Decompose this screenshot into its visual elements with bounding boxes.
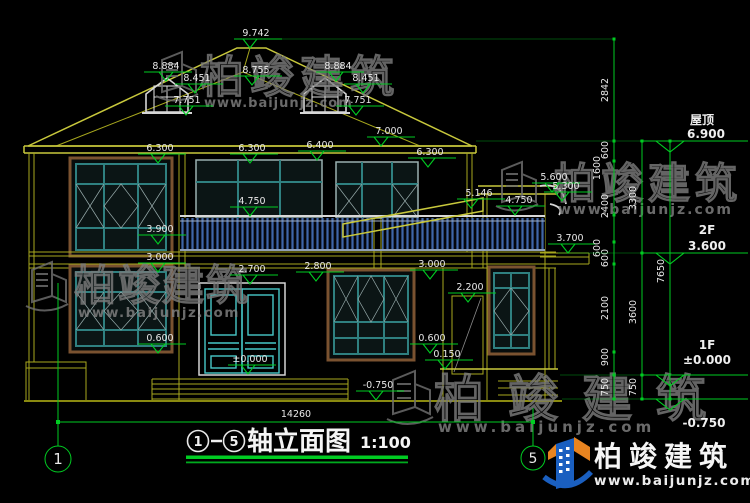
brand-name: 柏竣建筑 (594, 440, 734, 473)
svg-text:4.750: 4.750 (505, 195, 532, 206)
svg-text:0.150: 0.150 (433, 349, 460, 360)
svg-text:0.600: 0.600 (146, 333, 173, 344)
chain1-dim: 750 (600, 378, 611, 396)
chain1-dim: 600 (600, 249, 611, 267)
watermark-url: www.baijunjz.com (558, 202, 733, 218)
title-axis-from: 1 (193, 435, 202, 450)
chain2-dim: 3300 (628, 186, 639, 210)
chain1-dim: 2100 (600, 296, 611, 320)
cad-elevation-drawing: 柏竣建筑 www.baijunjz.com 柏竣建筑 www.baijunjz.… (0, 0, 750, 503)
title-underline (186, 456, 408, 460)
chain1-dim: 900 (600, 348, 611, 366)
svg-text:6.300: 6.300 (238, 143, 265, 154)
total-width-dim: 14260 (281, 409, 311, 420)
svg-text:5.146: 5.146 (465, 188, 492, 199)
svg-text:3.900: 3.900 (146, 224, 173, 235)
svg-text:7.000: 7.000 (375, 126, 402, 137)
window-f2-left (70, 158, 172, 256)
svg-text:6.400: 6.400 (306, 140, 333, 151)
svg-text:8.884: 8.884 (152, 61, 179, 72)
watermark-url: www.baijunjz.com (438, 418, 655, 436)
window-f2-right (336, 162, 418, 218)
svg-text:3.700: 3.700 (556, 233, 583, 244)
watermark-url: www.baijunjz.com (78, 305, 240, 321)
svg-text:4.750: 4.750 (238, 196, 265, 207)
svg-text:8.884: 8.884 (324, 61, 351, 72)
chain2-dim: 3600 (628, 300, 639, 324)
brand-url: www.baijunjz.com (594, 473, 750, 489)
svg-text:5.300: 5.300 (552, 181, 579, 192)
title-text: 轴立面图 (247, 426, 351, 457)
window-bay (489, 267, 534, 354)
title-axis-to: 5 (229, 435, 238, 450)
svg-text:2.700: 2.700 (238, 264, 265, 275)
watermark-text: 柏竣建筑 (74, 261, 250, 310)
svg-text:3.600: 3.600 (688, 239, 726, 253)
watermark-url: www.baijunjz.com (204, 96, 353, 111)
svg-text:1F: 1F (699, 338, 716, 352)
svg-text:6.300: 6.300 (416, 147, 443, 158)
svg-text:3.000: 3.000 (418, 259, 445, 270)
svg-text:9.742: 9.742 (242, 28, 269, 39)
svg-text:-0.750: -0.750 (683, 416, 726, 430)
svg-text:屋顶: 屋顶 (690, 113, 714, 127)
svg-text:±0.000: ±0.000 (232, 354, 267, 365)
axis-number: 5 (529, 451, 538, 467)
svg-text:3.000: 3.000 (146, 252, 173, 263)
axis-number: 1 (53, 450, 63, 468)
svg-text:8.451: 8.451 (352, 73, 379, 84)
svg-text:8.451: 8.451 (183, 73, 210, 84)
chain1-dim: 2842 (600, 78, 611, 102)
svg-text:2F: 2F (699, 223, 716, 237)
watermark-text: 柏竣建筑 (554, 159, 742, 208)
drawing-canvas: 柏竣建筑 www.baijunjz.com 柏竣建筑 www.baijunjz.… (0, 0, 750, 503)
title-scale: 1:100 (360, 433, 411, 452)
chain2-dim: 750 (628, 378, 639, 396)
svg-text:-0.750: -0.750 (363, 380, 394, 391)
svg-text:2.200: 2.200 (456, 282, 483, 293)
svg-text:2.800: 2.800 (304, 261, 331, 272)
chain1-dim: 2400 (600, 194, 611, 218)
svg-text:0.600: 0.600 (418, 333, 445, 344)
chain1-dim: 1600 (592, 156, 603, 180)
chain3-dim: 7650 (656, 259, 667, 283)
svg-text:7.751: 7.751 (173, 95, 200, 106)
svg-text:8.755: 8.755 (242, 65, 269, 76)
svg-text:6.900: 6.900 (687, 127, 725, 141)
window-f2-mid (196, 160, 322, 218)
svg-text:7.751: 7.751 (344, 95, 371, 106)
svg-text:±0.000: ±0.000 (683, 353, 731, 367)
svg-text:6.300: 6.300 (146, 143, 173, 154)
window-f1-mid (328, 270, 414, 360)
title-underline-2 (186, 462, 408, 464)
